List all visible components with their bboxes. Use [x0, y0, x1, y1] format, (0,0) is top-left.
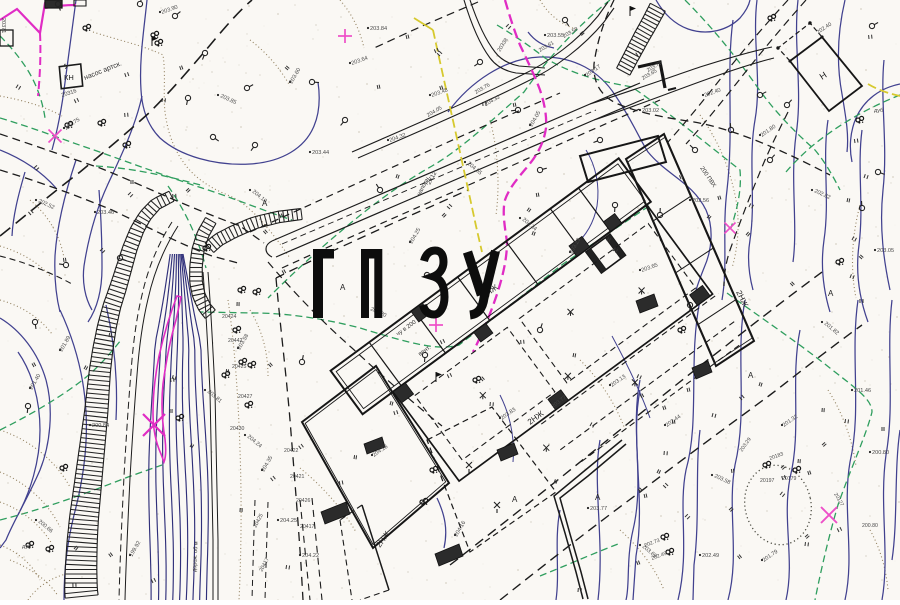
svg-text:202.56: 202.56 — [692, 198, 709, 204]
svg-text:20417: 20417 — [300, 524, 315, 530]
svg-text:КН: КН — [64, 73, 74, 82]
svg-text:20425: 20425 — [232, 364, 247, 370]
svg-text:204.22: 204.22 — [302, 553, 319, 559]
svg-text:200.84: 200.84 — [92, 423, 109, 429]
svg-text:203.77: 203.77 — [590, 506, 607, 512]
svg-text:20422: 20422 — [284, 448, 299, 454]
svg-text:20424: 20424 — [222, 314, 237, 320]
svg-text:А: А — [340, 283, 346, 292]
svg-text:20421: 20421 — [290, 474, 305, 480]
svg-text:20442: 20442 — [228, 338, 243, 344]
svg-text:А: А — [595, 493, 601, 502]
svg-text:20427: 20427 — [238, 394, 253, 400]
svg-text:200.80: 200.80 — [862, 523, 878, 529]
svg-text:203.05: 203.05 — [877, 248, 894, 254]
svg-text:дуб: дуб — [874, 108, 883, 114]
svg-text:А: А — [828, 289, 834, 298]
svg-text:А: А — [262, 199, 268, 208]
svg-text:203.84: 203.84 — [370, 26, 387, 32]
svg-text:20430: 20430 — [230, 426, 245, 432]
svg-text:20426: 20426 — [296, 498, 311, 504]
svg-text:201.46: 201.46 — [854, 388, 871, 394]
svg-text:А: А — [512, 495, 518, 504]
svg-text:203.44: 203.44 — [312, 150, 329, 156]
svg-text:20179: 20179 — [782, 476, 797, 482]
svg-text:20197: 20197 — [760, 478, 775, 484]
svg-text:203.46: 203.46 — [97, 210, 114, 216]
svg-text:дуб: дуб — [22, 544, 31, 550]
svg-text:200.80: 200.80 — [872, 450, 889, 456]
svg-text:202.49: 202.49 — [702, 553, 719, 559]
svg-text:203.02: 203.02 — [642, 108, 659, 114]
svg-text:20371: 20371 — [0, 18, 6, 33]
svg-text:204.25: 204.25 — [280, 518, 297, 524]
svg-text:А: А — [748, 371, 754, 380]
